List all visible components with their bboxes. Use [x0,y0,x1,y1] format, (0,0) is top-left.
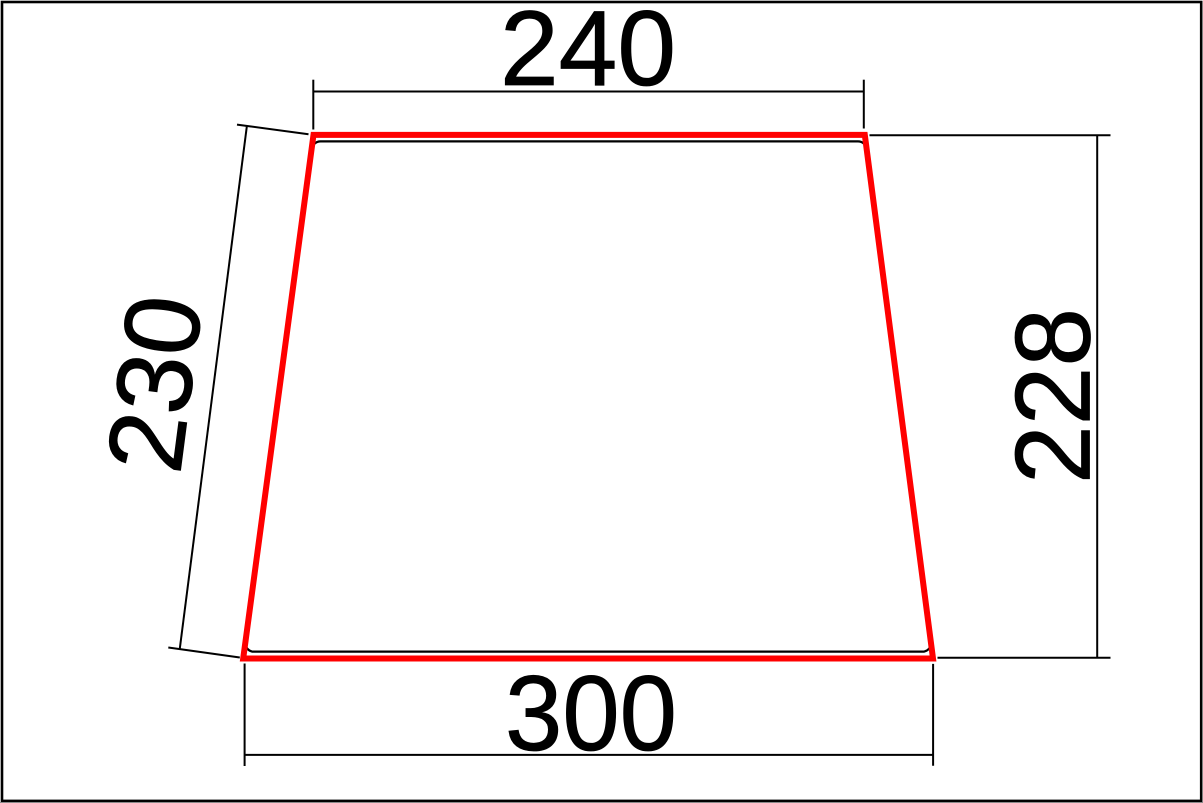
svg-text:228: 228 [993,308,1113,484]
svg-text:300: 300 [505,653,677,773]
svg-text:240: 240 [500,0,676,108]
svg-text:230: 230 [84,289,226,479]
